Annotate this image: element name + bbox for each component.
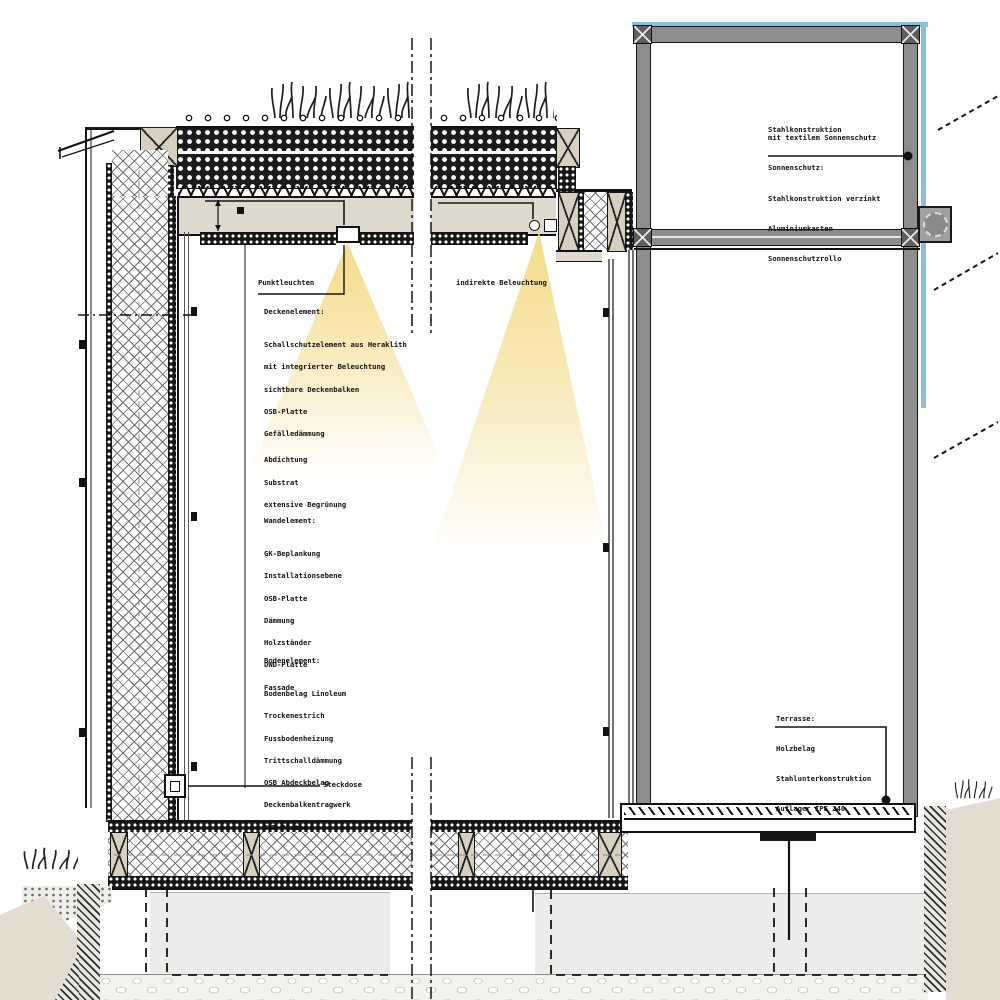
- deckenelement-line: Abdichtung: [264, 456, 407, 463]
- deckenelement-line: Gefälledämmung: [264, 430, 407, 437]
- wandelement-line: Dämmung: [264, 617, 342, 624]
- fastener-clip: [79, 728, 85, 737]
- deckenelement-line: extensive Begrünung: [264, 501, 407, 508]
- bodenelement-heading: Bodenelement:: [264, 657, 320, 665]
- acoustic-panel-strip: [200, 232, 336, 245]
- fastener-clip: [191, 512, 197, 521]
- ground-grass-left: [0, 843, 78, 877]
- socket-outlet: [170, 781, 180, 792]
- fastener-clip: [79, 340, 85, 349]
- acoustic-panel-strip: [431, 232, 528, 245]
- steel-joint: [901, 25, 920, 44]
- foundation-slab-right: [535, 893, 928, 977]
- fastener-clip: [79, 478, 85, 487]
- sunscreen-callout-line2: mit textilem Sonnenschutz: [768, 134, 876, 142]
- wandelement-line: Holzständer: [264, 639, 342, 646]
- label-punktleuchten: Punktleuchten: [258, 279, 314, 287]
- steel-column-right: [903, 27, 918, 817]
- gravel-bed: [98, 974, 928, 1000]
- deckenelement-line: Schallschutzelement aus Heraklith: [264, 341, 407, 348]
- wall-gk-line: [188, 232, 189, 822]
- deckenelement-line: OSB-Platte: [264, 408, 407, 415]
- bodenelement-list: Bodenbelag Linoleum Trockenestrich Fussb…: [264, 675, 351, 846]
- deckenelement-line: sichtbare Deckenbalken: [264, 386, 407, 393]
- right-wall-stud-outer: [607, 192, 627, 252]
- fastener-clip: [603, 308, 609, 317]
- acoustic-panel-strip: [360, 232, 414, 245]
- terrasse-line: Stahlunterkonstruktion: [776, 775, 871, 790]
- deckenelement-heading: Deckenelement:: [264, 308, 325, 316]
- sonnenschutz-heading: Sonnenschutz:: [768, 164, 824, 172]
- terrasse-line: Auflager IPE 240: [776, 805, 871, 820]
- wall-gk-line: [184, 232, 185, 822]
- terrasse-heading: Terrasse:: [776, 715, 815, 723]
- steel-joint: [633, 228, 652, 247]
- terrasse-list: Holzbelag Stahlunterkonstruktion Auflage…: [776, 730, 871, 835]
- right-parapet-blocking: [556, 128, 580, 168]
- floor-insulation-left: [108, 832, 412, 876]
- bodenelement-line: Fussbodenheizung: [264, 735, 351, 742]
- label-steckdose: Steckdose: [323, 781, 362, 789]
- bodenelement-line: Trockenestrich: [264, 712, 351, 719]
- floor-beam: [598, 832, 622, 878]
- right-parapet-sheathing: [558, 166, 576, 192]
- sonnenschutz-list: Stahlkonstruktion verzinkt Aluminiumkast…: [768, 180, 881, 285]
- indirect-light-mount: [544, 219, 557, 232]
- roof-substrate-hatch-right: [431, 126, 557, 189]
- deckenelement-list: Schallschutzelement aus Heraklith mit in…: [264, 326, 407, 523]
- wall-osb-board: [168, 196, 176, 822]
- substrate-pebbles-row-right: [435, 110, 557, 126]
- section-drawing: Punktleuchten indirekte Beleuchtung Deck…: [0, 0, 1000, 1000]
- roof-decking-teeth-left: [178, 186, 414, 196]
- roof-substrate-hatch-left: [176, 126, 414, 189]
- steel-column-left: [636, 27, 651, 817]
- steel-joint: [633, 25, 652, 44]
- substrate-pebbles-row-left: [180, 110, 412, 126]
- bodenelement-line: DWD Platte: [264, 824, 351, 831]
- fastener-clip: [191, 762, 197, 771]
- ground-grass-right: [948, 775, 1000, 807]
- wandelement-line: Installationsebene: [264, 572, 342, 579]
- floor-beam: [458, 832, 475, 878]
- fastener-clip: [603, 727, 609, 736]
- sonnenschutz-line: Aluminiumkasten: [768, 225, 881, 240]
- sonnenschutz-line: Sonnenschutzrollo: [768, 255, 881, 270]
- fastener-clip: [603, 543, 609, 552]
- sonnenschutz-line: Stahlkonstruktion verzinkt: [768, 195, 881, 210]
- spotlight-fixture: [336, 226, 360, 243]
- wandelement-heading: Wandelement:: [264, 517, 316, 525]
- roof-decking-teeth-right: [431, 186, 556, 196]
- parapet-insulation: [112, 150, 168, 196]
- floor-bottom-sheathing-right: [431, 876, 628, 890]
- bodenelement-line: Trittschalldämmung: [264, 757, 351, 764]
- floor-beam: [110, 832, 128, 878]
- right-wall-insulation: [584, 192, 607, 250]
- floor-beam: [243, 832, 260, 878]
- soil-right: [946, 798, 1000, 1000]
- steel-top-beam: [634, 26, 920, 43]
- right-wall-dwd: [625, 192, 633, 250]
- indirect-light-fixture: [529, 220, 540, 231]
- deckenelement-line: mit integrierter Beleuchtung: [264, 363, 407, 370]
- right-wall-stud: [558, 192, 580, 252]
- foundation-slab-left: [150, 892, 390, 977]
- terrasse-line: Holzbelag: [776, 745, 871, 760]
- sunscreen-roller: [923, 212, 948, 237]
- wall-insulation: [112, 196, 168, 822]
- label-indirekte-beleuchtung: indirekte Beleuchtung: [456, 279, 547, 287]
- roof-layer-separator-right: [431, 151, 557, 154]
- deckenelement-line: Substrat: [264, 479, 407, 486]
- ceiling-beam-band-left: [178, 196, 414, 236]
- bodenelement-line: Bodenbelag Linoleum: [264, 690, 351, 697]
- bodenelement-line: Deckenbalkentragwerk: [264, 801, 351, 808]
- right-wall-sill: [556, 250, 602, 262]
- wall-interior-face-line: [177, 196, 179, 822]
- retaining-wall-right: [924, 806, 946, 992]
- wandelement-line: OSB-Platte: [264, 595, 342, 602]
- wandelement-line: GK-Beplankung: [264, 550, 342, 557]
- roof-layer-separator-left: [176, 151, 414, 154]
- retaining-wall-left: [77, 884, 100, 1000]
- fastener-clip: [191, 307, 197, 316]
- floor-bottom-sheathing-left: [108, 876, 412, 890]
